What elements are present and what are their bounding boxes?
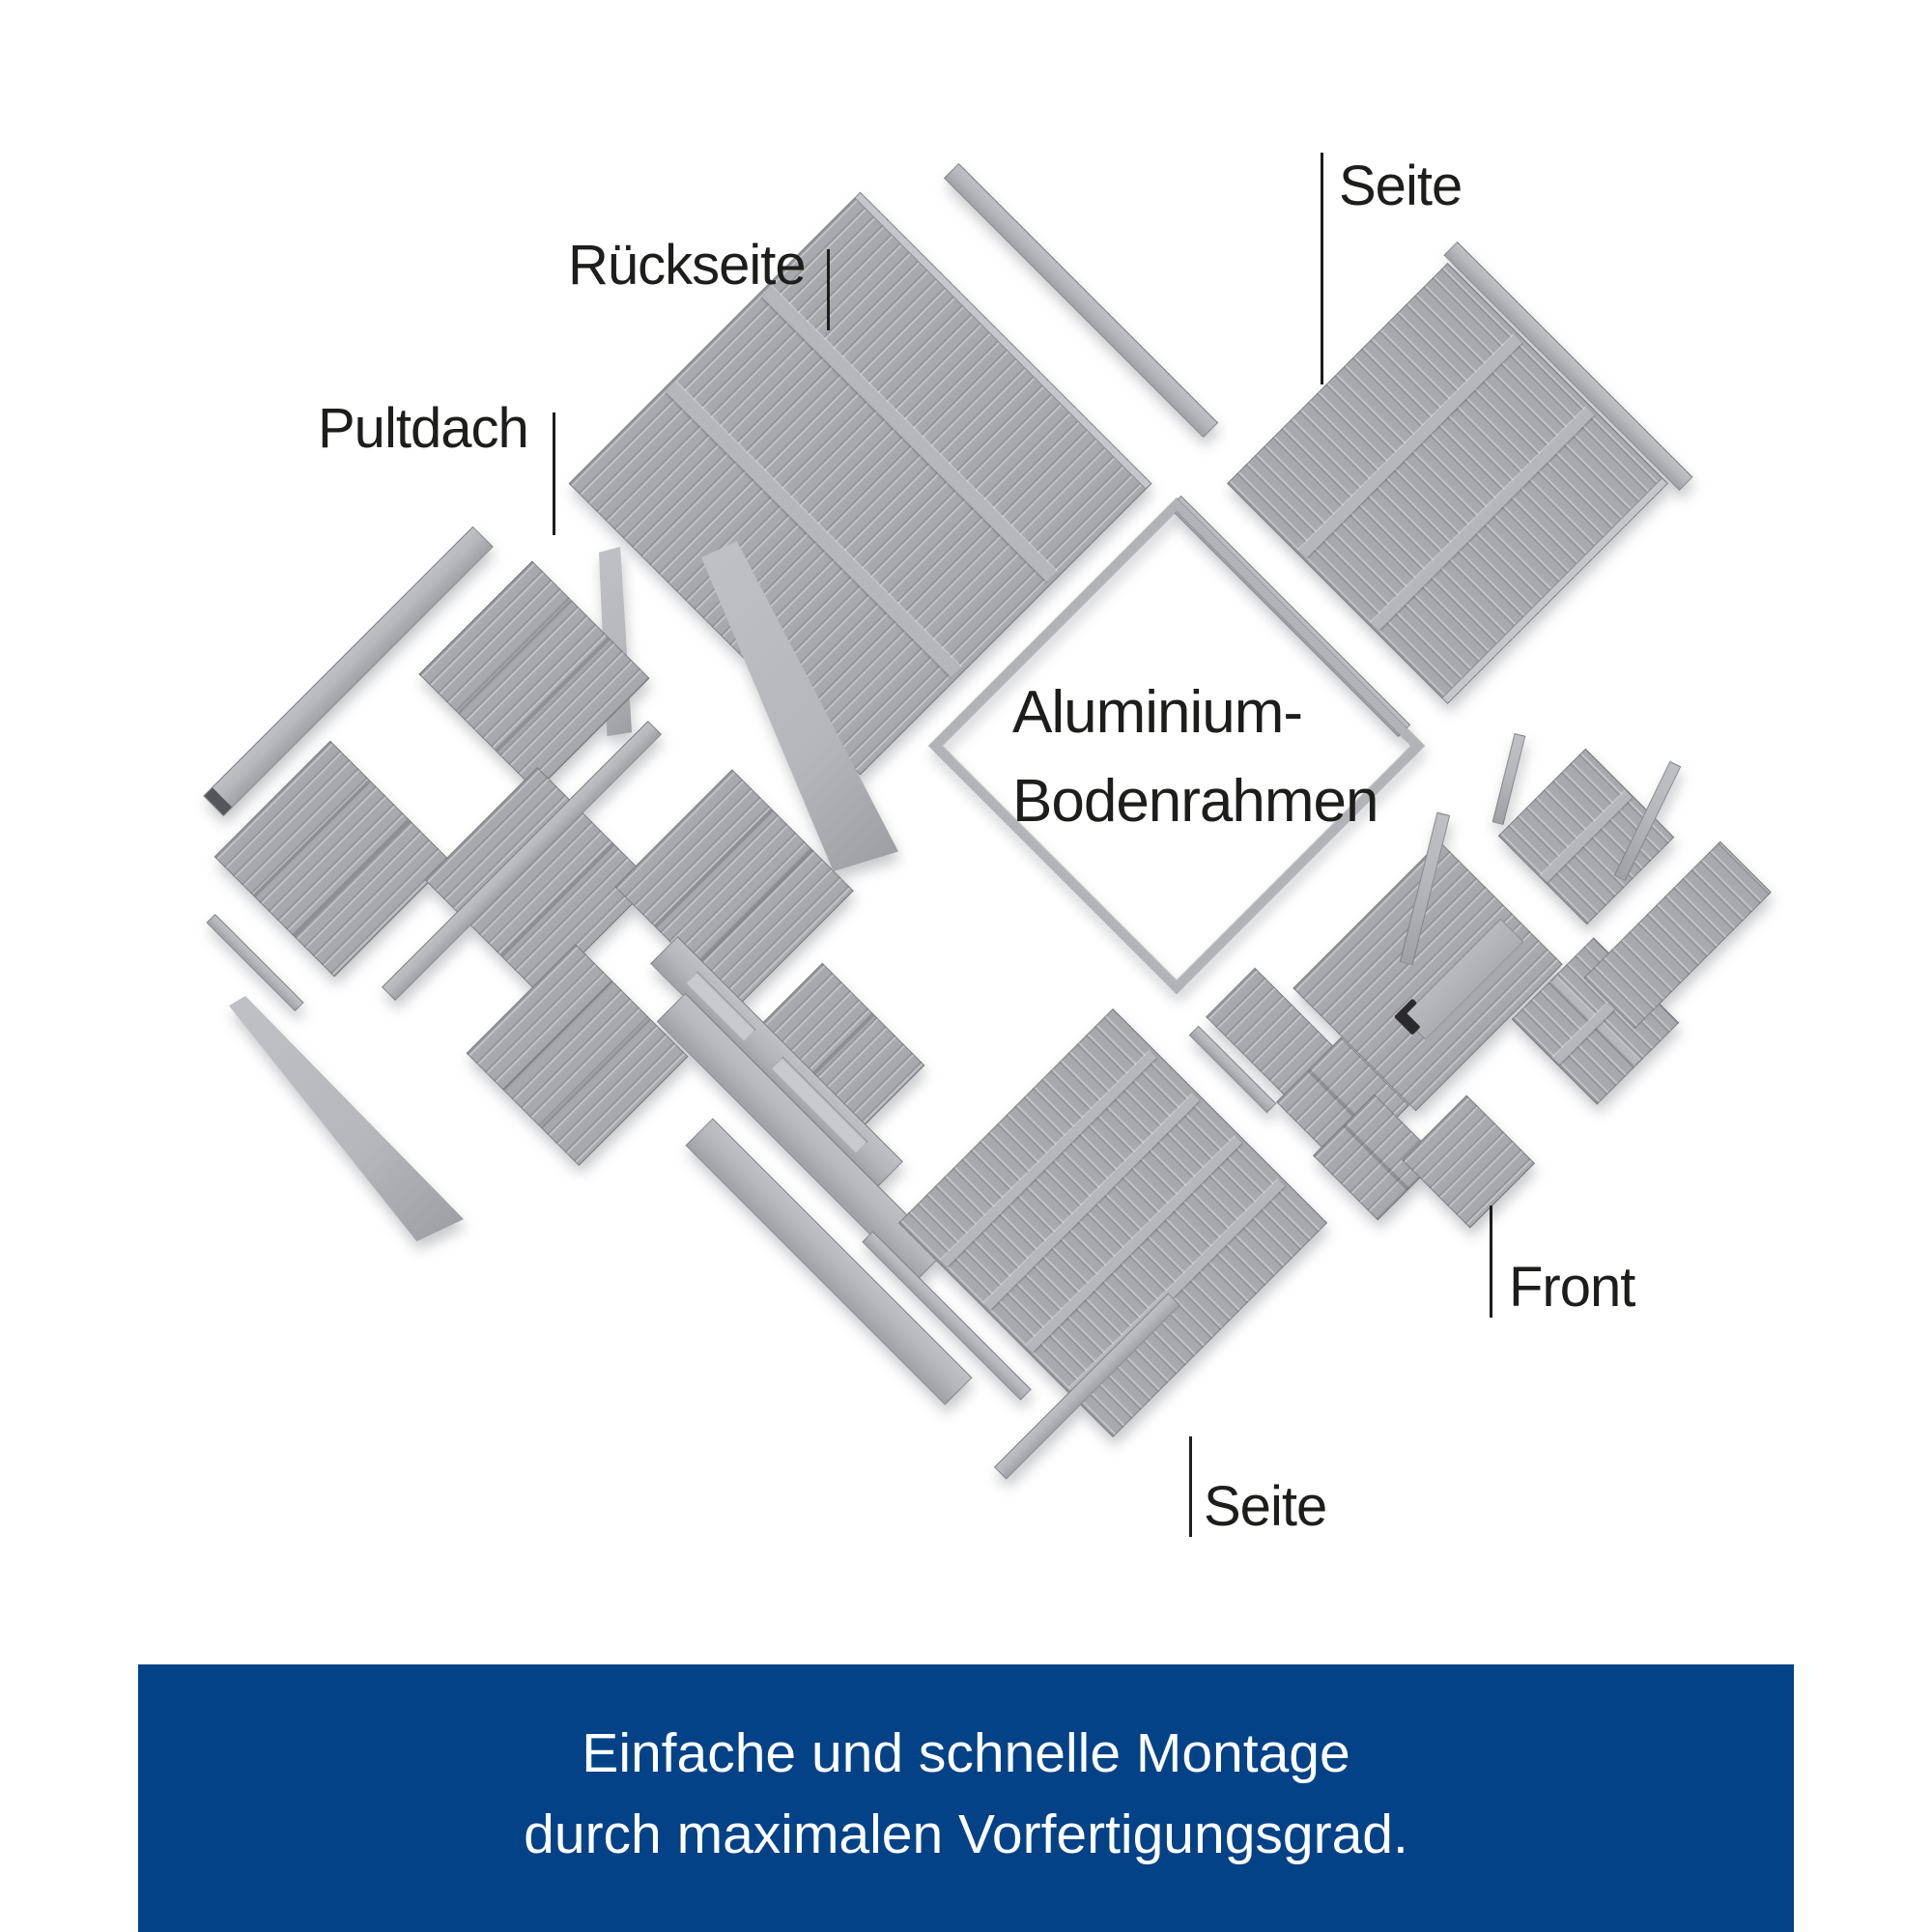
leader-line	[1189, 1436, 1192, 1537]
label-seite-top: Seite	[1339, 156, 1462, 217]
shed-parts-diagram: Seite Rückseite Pultdach Front Seite Alu…	[0, 0, 1932, 1932]
profile-end-cap	[204, 788, 231, 815]
panel-rail	[1026, 1136, 1241, 1351]
panel-rail	[1371, 407, 1594, 630]
plank-seam	[1343, 1124, 1409, 1191]
panel-front	[1498, 749, 1674, 924]
label-bodenrahmen: Aluminium- Bodenrahmen	[1012, 668, 1378, 846]
panel-rail	[762, 286, 1057, 581]
exploded-parts-illustration	[0, 0, 1932, 1932]
panel-rail	[666, 383, 960, 677]
edge-cap	[1441, 477, 1666, 702]
plank-seam	[654, 809, 773, 927]
banner-line2: durch maximalen Vorfertigungsgrad.	[138, 1794, 1794, 1875]
label-bodenrahmen-line2: Bodenrahmen	[1012, 757, 1378, 846]
panel-rail	[1298, 334, 1521, 557]
wedge-gable	[229, 996, 464, 1241]
label-pultdach: Pultdach	[318, 398, 528, 460]
label-rueckseite: Rückseite	[568, 235, 806, 297]
panel-rail	[941, 1051, 1156, 1266]
label-bodenrahmen-line1: Aluminium-	[1012, 668, 1378, 757]
bottom-banner: Einfache und schnelle Montage durch maxi…	[138, 1664, 1794, 1932]
leader-line	[1490, 1206, 1492, 1318]
label-front: Front	[1509, 1257, 1634, 1319]
panel-rail	[983, 1094, 1199, 1309]
plank-seam	[457, 599, 572, 714]
panel-roof	[466, 944, 688, 1166]
plank-seam	[502, 980, 613, 1092]
label-seite-bottom: Seite	[1204, 1476, 1326, 1538]
plank-seam	[253, 780, 371, 897]
banner-line1: Einfache und schnelle Montage	[138, 1713, 1794, 1794]
leader-line	[553, 412, 555, 535]
leader-line	[827, 249, 830, 330]
leader-line	[1321, 153, 1323, 384]
panel-front	[1402, 1094, 1535, 1228]
strip-door-trim	[1492, 732, 1526, 824]
